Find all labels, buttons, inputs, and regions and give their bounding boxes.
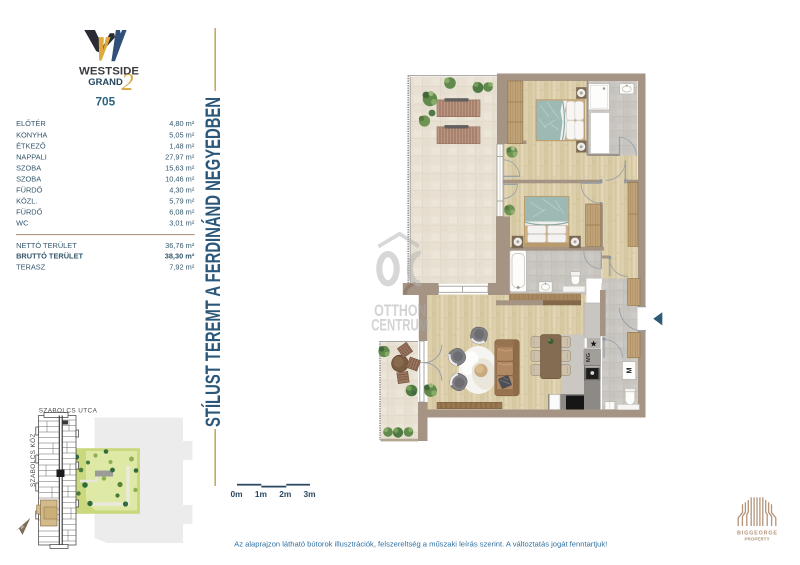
svg-text:2: 2 xyxy=(122,70,134,96)
svg-text:SZOBA: SZOBA xyxy=(16,163,41,172)
svg-text:2m: 2m xyxy=(279,489,291,499)
svg-text:NAPPALI: NAPPALI xyxy=(16,152,47,161)
svg-text:38,30 m²: 38,30 m² xyxy=(165,252,195,261)
svg-text:705: 705 xyxy=(95,95,115,109)
svg-text:STÍLUST TEREMT A FERDINÁND NEG: STÍLUST TEREMT A FERDINÁND NEGYEDBEN xyxy=(200,97,225,427)
svg-text:FÜRDŐ: FÜRDŐ xyxy=(16,186,43,195)
svg-text:SZOBA: SZOBA xyxy=(16,175,41,184)
svg-text:GRAND: GRAND xyxy=(88,76,123,87)
svg-text:4,80 m²: 4,80 m² xyxy=(169,119,195,128)
svg-text:7,92 m²: 7,92 m² xyxy=(169,262,195,271)
svg-text:KONYHA: KONYHA xyxy=(16,130,47,139)
svg-text:ELŐTÉR: ELŐTÉR xyxy=(16,119,46,128)
svg-text:PROPERTY: PROPERTY xyxy=(745,537,770,542)
svg-text:3,01 m²: 3,01 m² xyxy=(169,219,195,228)
svg-text:MG: MG xyxy=(586,352,592,362)
svg-text:TERASZ: TERASZ xyxy=(16,262,46,271)
svg-text:SZABOLCS KÖZ: SZABOLCS KÖZ xyxy=(29,433,37,487)
svg-text:3m: 3m xyxy=(303,489,315,499)
svg-text:5,79 m²: 5,79 m² xyxy=(169,197,195,206)
svg-text:ÉTKEZŐ: ÉTKEZŐ xyxy=(16,141,46,150)
svg-text:NETTÓ TERÜLET: NETTÓ TERÜLET xyxy=(16,241,77,250)
svg-text:10,46 m²: 10,46 m² xyxy=(165,175,195,184)
svg-text:0m: 0m xyxy=(230,489,242,499)
svg-text:36,76 m²: 36,76 m² xyxy=(165,241,195,250)
svg-text:FÜRDŐ: FÜRDŐ xyxy=(16,208,43,217)
svg-text:4,30 m²: 4,30 m² xyxy=(169,186,195,195)
svg-text:WC: WC xyxy=(16,219,29,228)
svg-text:SZABOLCS UTCA: SZABOLCS UTCA xyxy=(39,408,98,415)
svg-text:5,05 m²: 5,05 m² xyxy=(169,130,195,139)
svg-text:KÖZL.: KÖZL. xyxy=(16,197,37,206)
svg-text:CENTRUM: CENTRUM xyxy=(371,317,428,335)
svg-text:15,63 m²: 15,63 m² xyxy=(165,163,195,172)
svg-text:27,97 m²: 27,97 m² xyxy=(165,152,195,161)
svg-text:6,08 m²: 6,08 m² xyxy=(169,208,195,217)
svg-text:1m: 1m xyxy=(255,489,267,499)
svg-text:Az alaprajzon látható bútorok: Az alaprajzon látható bútorok illusztrác… xyxy=(234,540,607,549)
svg-text:★: ★ xyxy=(590,339,598,349)
svg-text:BRUTTÓ TERÜLET: BRUTTÓ TERÜLET xyxy=(16,252,83,261)
svg-text:1,48 m²: 1,48 m² xyxy=(169,141,195,150)
svg-text:M: M xyxy=(627,367,634,373)
